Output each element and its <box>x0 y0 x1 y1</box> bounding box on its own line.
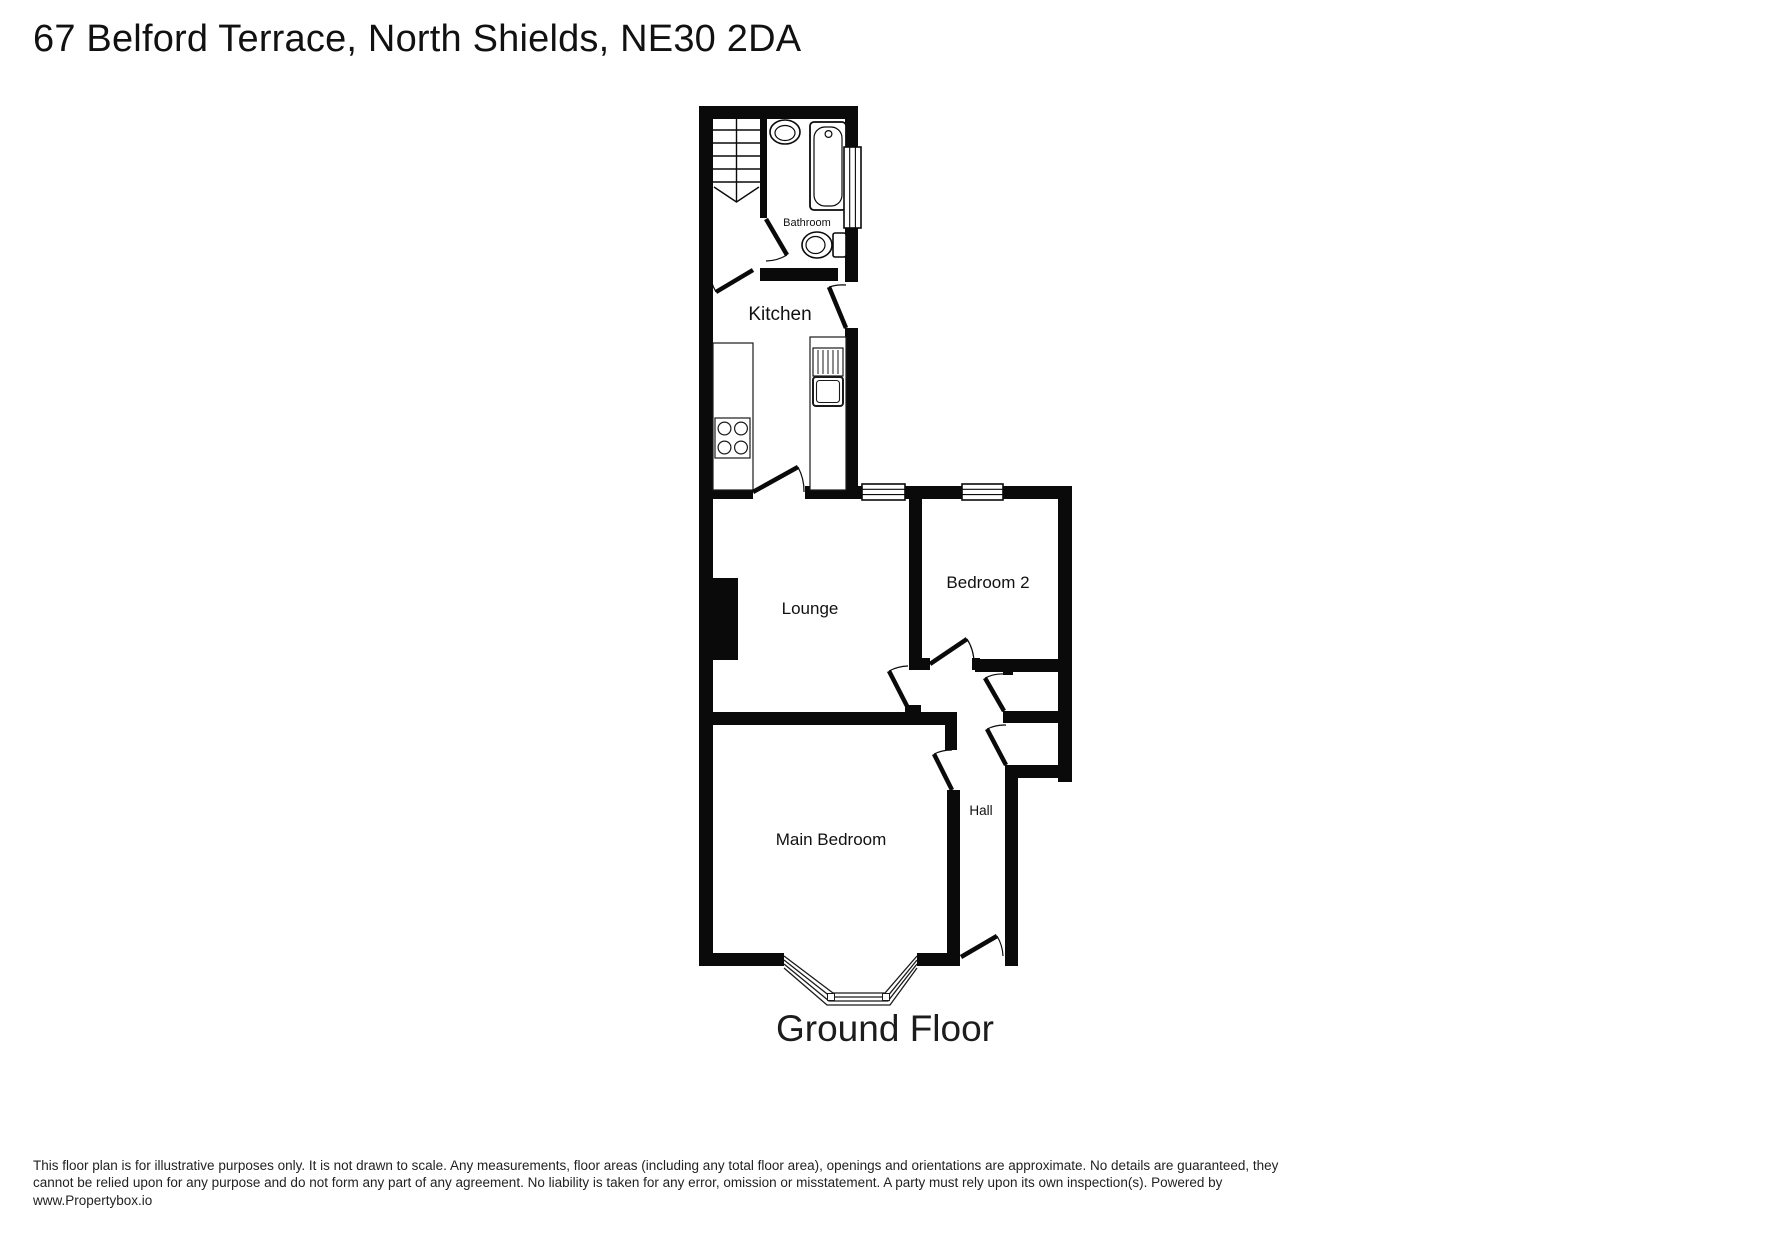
disclaimer-text: This floor plan is for illustrative purp… <box>33 1157 1303 1209</box>
toilet-icon <box>802 232 846 258</box>
room-label-hall: Hall <box>969 803 992 818</box>
bathtub-icon <box>810 122 846 210</box>
main-bedroom-door <box>934 750 952 790</box>
room-label-lounge: Lounge <box>782 599 839 618</box>
kitchen-counter-left <box>713 343 753 490</box>
hob-icon <box>715 418 750 458</box>
room-label-bathroom: Bathroom <box>783 217 831 229</box>
hall-cupboard-door-bottom <box>987 725 1006 765</box>
kitchen-rear-door <box>829 285 846 328</box>
floor-plan-drawing: Bathroom Kitchen Lounge Bedroom 2 Main B… <box>0 0 1771 1239</box>
bedroom2-window <box>962 484 1003 500</box>
kitchen-lounge-door <box>753 467 804 492</box>
room-label-kitchen: Kitchen <box>748 304 811 325</box>
stairs-door <box>710 270 753 292</box>
bedroom2-door <box>930 639 974 664</box>
bathroom-sink-icon <box>770 120 800 144</box>
room-label-bedroom2: Bedroom 2 <box>946 573 1029 592</box>
room-label-main-bedroom: Main Bedroom <box>776 830 887 849</box>
lounge-window <box>862 484 905 500</box>
front-door <box>961 936 1003 957</box>
page-title: 67 Belford Terrace, North Shields, NE30 … <box>33 18 801 61</box>
floor-caption: Ground Floor <box>776 1008 994 1050</box>
stairs-icon <box>713 119 760 202</box>
floorplan-page: 67 Belford Terrace, North Shields, NE30 … <box>0 0 1771 1239</box>
bathroom-window <box>844 147 861 228</box>
kitchen-sink-icon <box>813 348 843 406</box>
hall-cupboard-door-top <box>985 674 1004 711</box>
lounge-door <box>889 666 908 708</box>
bay-window <box>784 956 917 1005</box>
